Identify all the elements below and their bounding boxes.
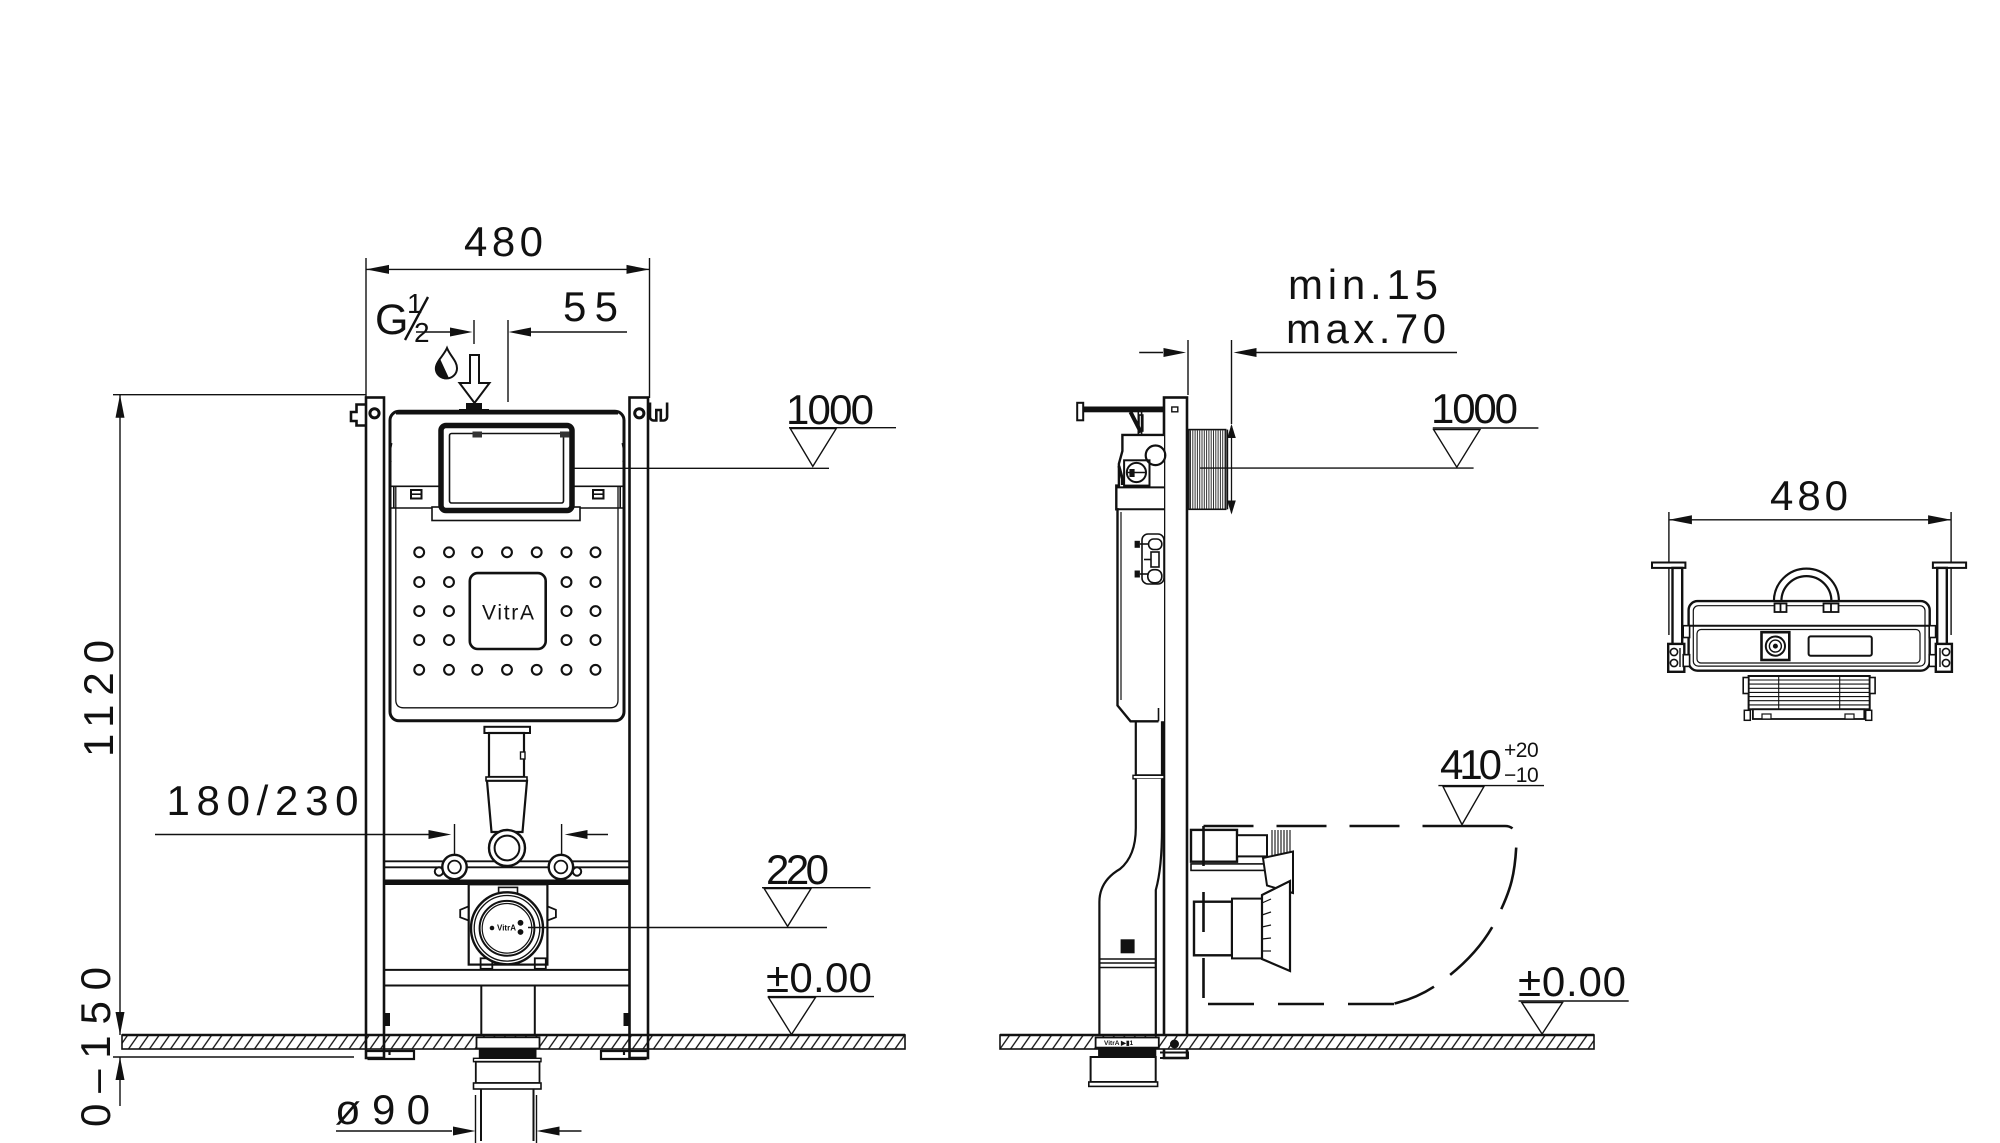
- svg-text:1: 1: [407, 288, 423, 319]
- svg-text:VitrA: VitrA: [497, 924, 516, 933]
- svg-text:VitrA ▶▮1: VitrA ▶▮1: [1104, 1040, 1134, 1047]
- svg-text:max.70: max.70: [1286, 305, 1446, 352]
- svg-text:220: 220: [766, 846, 829, 893]
- svg-text:min.15: min.15: [1288, 261, 1438, 308]
- svg-text:±0.00: ±0.00: [1518, 958, 1626, 1005]
- svg-text:G: G: [375, 296, 408, 344]
- svg-text:±0.00: ±0.00: [766, 954, 872, 1001]
- svg-text:410: 410: [1440, 741, 1502, 788]
- svg-text:480: 480: [1770, 472, 1848, 519]
- svg-text:480: 480: [464, 218, 543, 265]
- svg-text:ø90: ø90: [335, 1086, 430, 1133]
- svg-text:VitrA: VitrA: [482, 602, 534, 625]
- svg-text:1000: 1000: [786, 386, 874, 433]
- svg-text:+20: +20: [1504, 739, 1538, 762]
- svg-text:−10: −10: [1504, 764, 1538, 787]
- svg-text:1000: 1000: [1431, 385, 1518, 432]
